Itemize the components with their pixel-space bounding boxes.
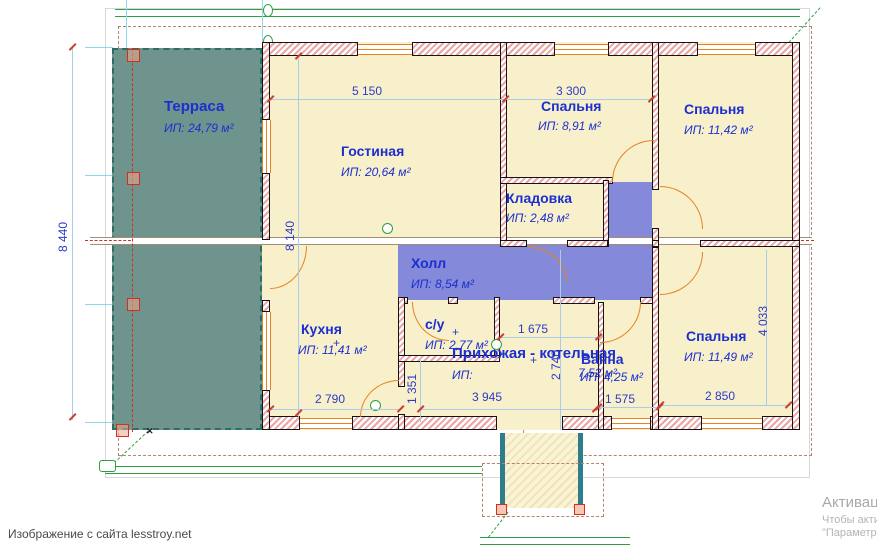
dim-bath-width: 1 575 [605, 392, 635, 406]
room-area-storage: ИП: 2,48 м² [506, 211, 569, 225]
window [702, 418, 762, 429]
dim-kitchen-width: 2 790 [315, 392, 345, 406]
dim-entry-offset: 1 351 [405, 359, 419, 419]
wall-segment [398, 414, 405, 430]
dim-bedroom-br-depth: 4 033 [756, 291, 770, 351]
wall-segment [500, 240, 527, 247]
dim-line [420, 409, 595, 410]
floor-plan-page: { "rooms": { "terrace": {"name": "Террас… [0, 0, 877, 548]
room-label-bedroom-bot-right: Спальня [686, 328, 746, 344]
post-marker [574, 504, 585, 515]
source-caption: Изображение с сайта lesstroy.net [8, 527, 191, 541]
wall-segment [562, 416, 612, 430]
dim-bedroom-br-width: 2 850 [705, 389, 735, 403]
center-mark-icon: + [452, 325, 459, 339]
room-label-storage: Кладовка [506, 190, 572, 206]
activation-watermark-line1: Активац [822, 494, 877, 511]
room-label-living: Гостиная [341, 143, 404, 159]
window [262, 312, 271, 390]
window [262, 120, 271, 173]
wall-segment [567, 240, 608, 247]
axis-marker [127, 298, 140, 311]
dim-corridor-depth: 2 740 [549, 335, 563, 395]
wall-segment [262, 173, 270, 240]
dim-line [420, 360, 421, 422]
wall-segment [652, 240, 659, 247]
room-area-kitchen: ИП: 11,41 м² [298, 343, 367, 357]
wall-segment [448, 297, 458, 304]
dim-inner-depth: 8 140 [283, 206, 297, 266]
room-area-living: ИП: 20,64 м² [341, 165, 411, 179]
room-area-hall: ИП: 8,54 м² [411, 277, 474, 291]
dim-line [72, 47, 73, 420]
dim-line [598, 407, 659, 408]
room-label-bedroom-top-mid: Спальня [541, 98, 601, 114]
wall-segment [603, 180, 609, 247]
guide-line [85, 47, 113, 48]
ridge-line-top [115, 9, 800, 17]
dim-corridor-width: 1 675 [518, 322, 548, 336]
window [555, 44, 608, 55]
dim-line [298, 56, 299, 417]
wall-segment [412, 42, 555, 56]
room-area-bath: ИП: 4,25 м² [580, 370, 643, 384]
guide-line [126, 0, 127, 50]
activation-watermark-line3: "Параметр [822, 527, 877, 539]
room-label-hall: Холл [411, 255, 446, 271]
wall-segment [262, 42, 270, 120]
wall-segment [652, 247, 659, 430]
wall-segment [500, 177, 613, 184]
x-marker-icon: ✕ [146, 426, 154, 437]
axis-line-horizontal [85, 240, 131, 241]
guide-line [85, 422, 113, 423]
window [300, 418, 352, 429]
room-label-bedroom-top-right: Спальня [684, 101, 744, 117]
wall-segment [792, 42, 800, 430]
ground-line-left [105, 466, 482, 474]
wall-segment [262, 42, 358, 56]
room-label-kitchen: Кухня [301, 321, 342, 337]
dim-entry-width: 3 945 [472, 390, 502, 404]
window [358, 44, 412, 55]
dim-living-width: 5 150 [352, 84, 382, 98]
room-area-label-entry-boiler: ИП: [452, 368, 473, 382]
dim-total-depth: 8 440 [56, 207, 70, 267]
wall-segment [262, 300, 270, 312]
wall-segment [398, 297, 405, 387]
axis-marker [116, 424, 129, 437]
window [698, 44, 755, 55]
axis-marker [127, 49, 140, 62]
room-label-terrace: Терраса [164, 98, 224, 115]
wall-segment [352, 416, 497, 430]
ground-line-bottom [480, 537, 630, 545]
room-area-bedroom-top-right: ИП: 11,42 м² [684, 123, 753, 137]
level-mark-icon [99, 460, 116, 472]
dim-line [270, 99, 505, 100]
room-label-wc: с/у [425, 316, 444, 332]
axis-marker [127, 172, 140, 185]
room-label-bath: Ванна [581, 351, 624, 367]
dim-line [660, 405, 790, 406]
activation-watermark-line2: Чтобы акти [822, 514, 877, 526]
room-area-terrace: ИП: 24,79 м² [164, 121, 234, 135]
room-area-bedroom-bot-right: ИП: 11,49 м² [684, 350, 753, 364]
ridge-marker-icon [263, 4, 273, 17]
dim-line [270, 409, 400, 410]
wall-segment [700, 240, 800, 247]
room-area-bedroom-top-mid: ИП: 8,91 м² [538, 119, 601, 133]
vent-marker-icon [382, 223, 393, 234]
axis-line-vertical [132, 48, 133, 432]
window [612, 418, 650, 429]
dim-bedroom-mid-width: 3 300 [556, 84, 586, 98]
